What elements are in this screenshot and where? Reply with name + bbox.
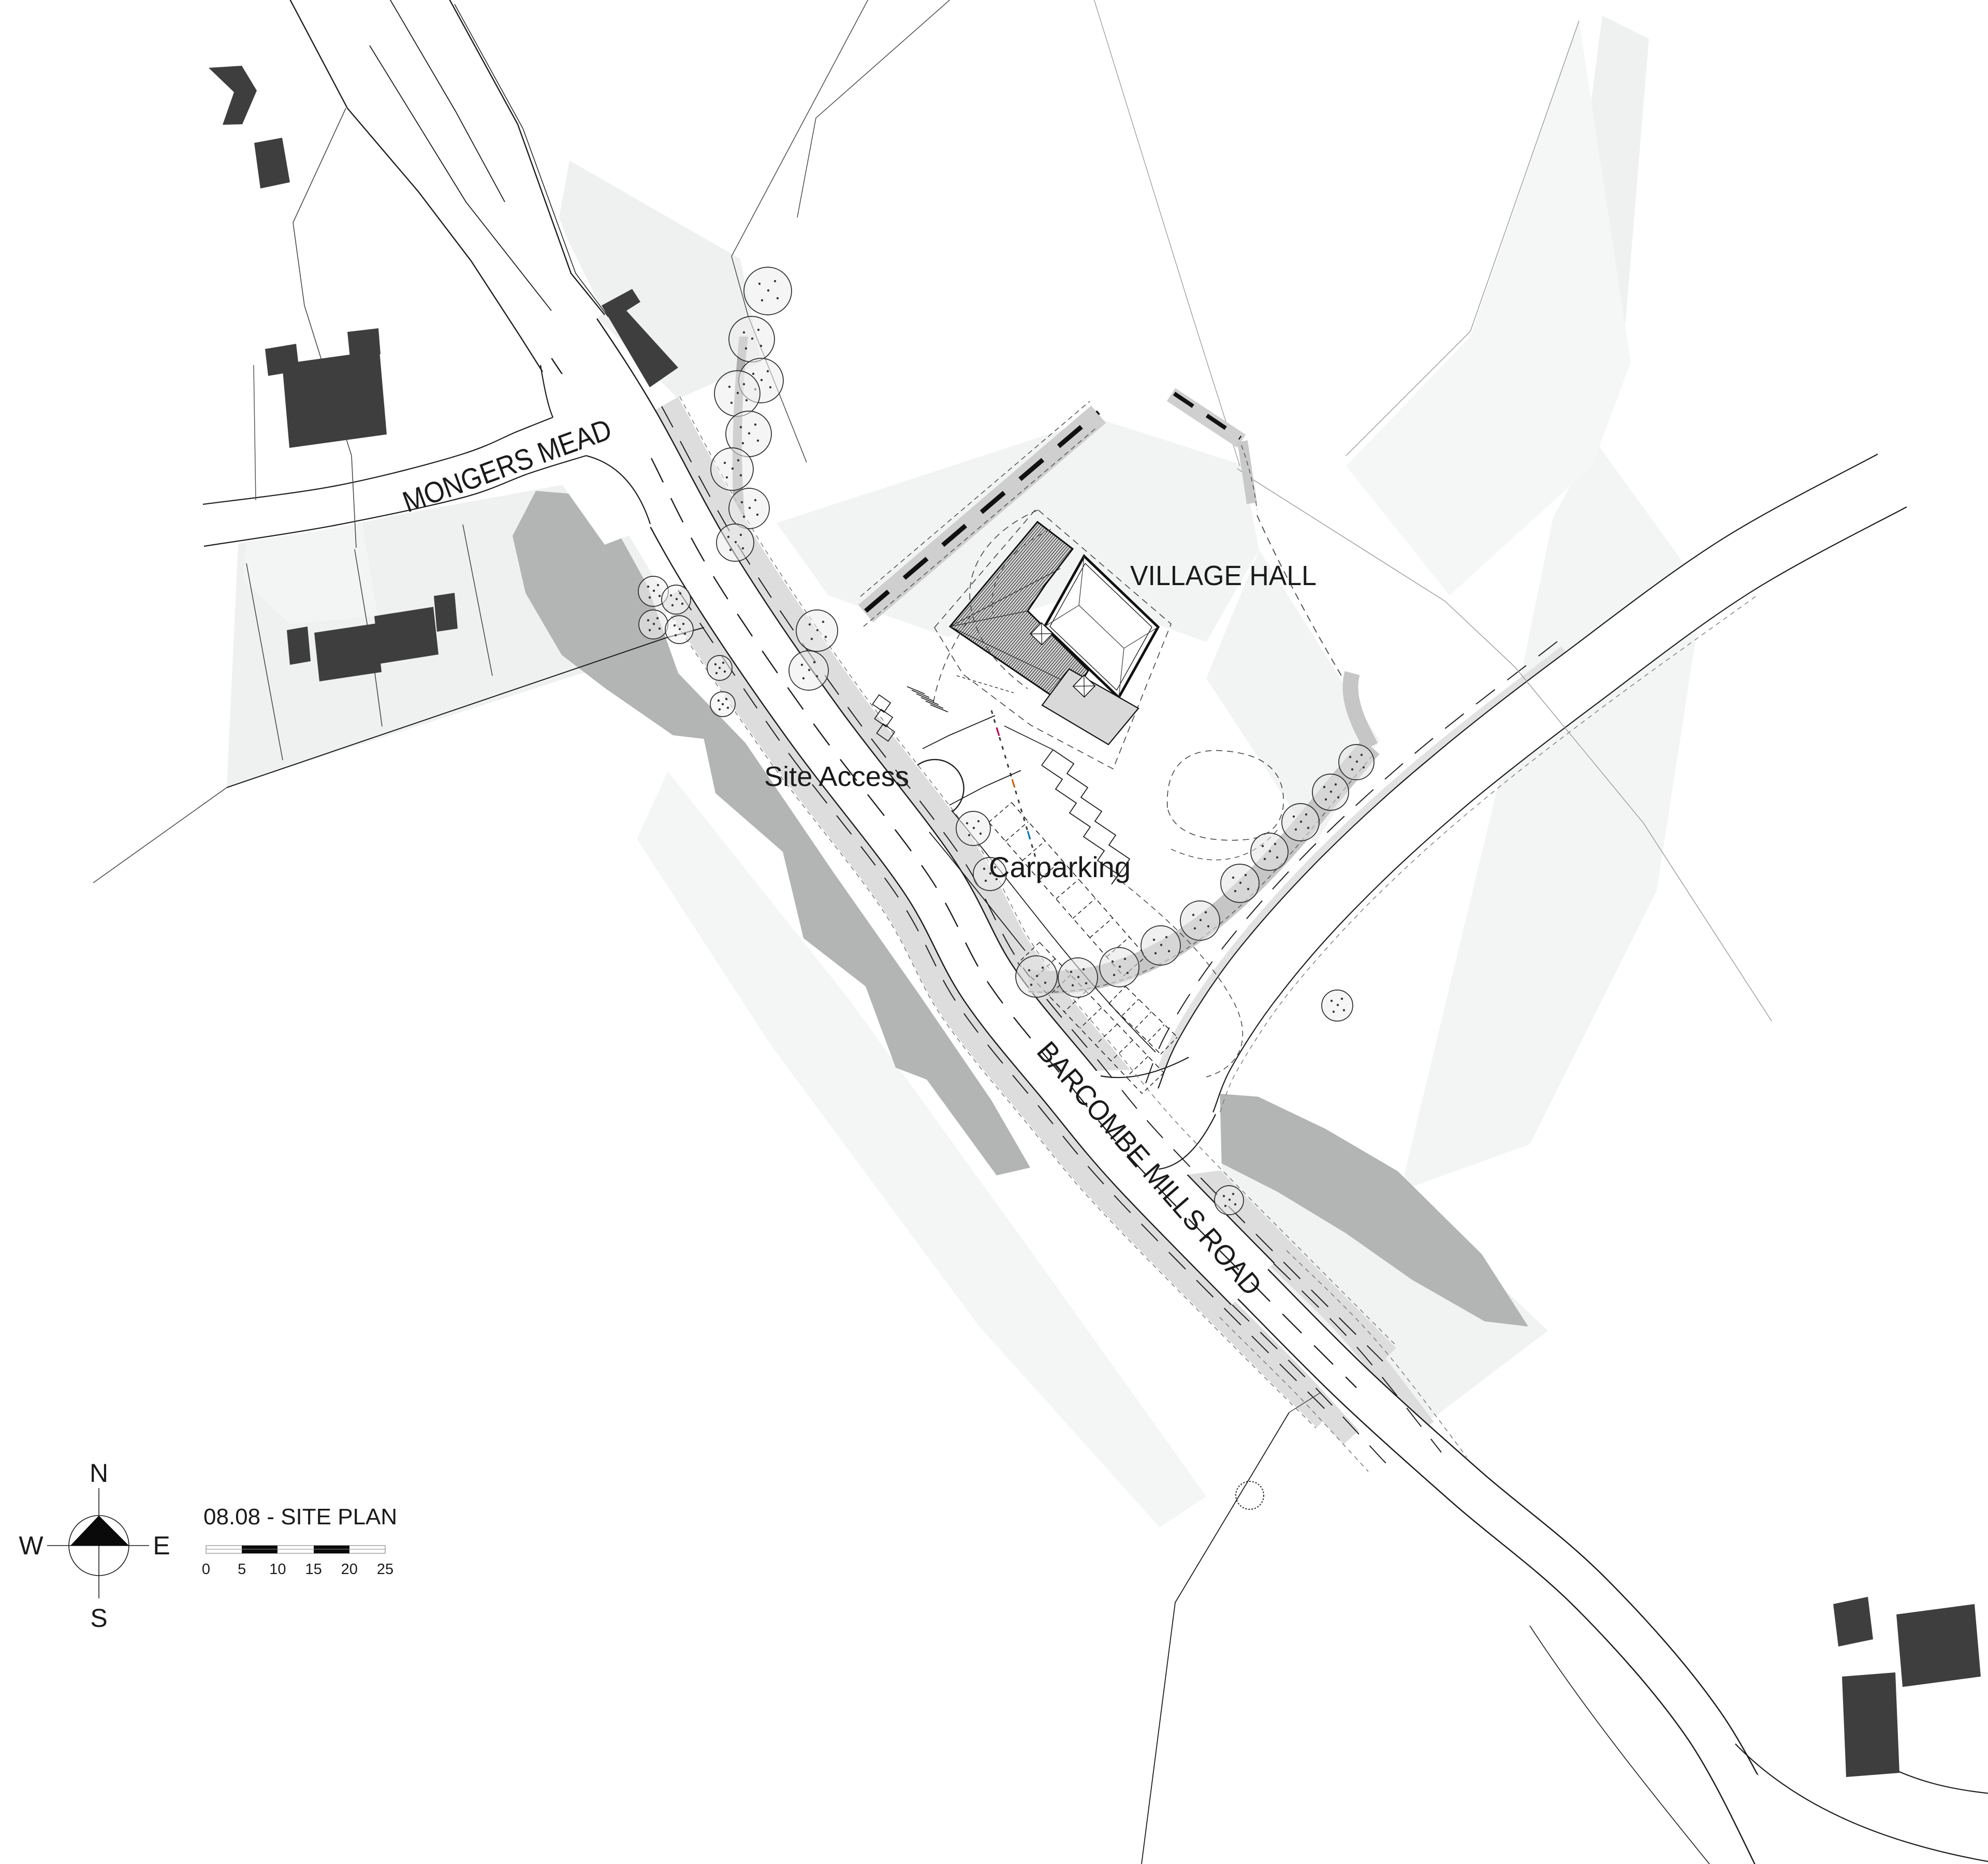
svg-text:0: 0 [202, 1561, 210, 1578]
svg-text:E: E [153, 1531, 170, 1560]
svg-text:15: 15 [305, 1561, 321, 1578]
svg-text:Site Access: Site Access [764, 761, 909, 792]
svg-text:10: 10 [269, 1561, 286, 1578]
svg-text:Carparking: Carparking [989, 851, 1131, 883]
svg-text:5: 5 [238, 1561, 246, 1578]
svg-text:VILLAGE HALL: VILLAGE HALL [1130, 560, 1317, 591]
svg-text:20: 20 [341, 1561, 358, 1578]
svg-text:N: N [90, 1459, 108, 1488]
svg-text:08.08 - SITE PLAN: 08.08 - SITE PLAN [203, 1504, 397, 1530]
svg-text:W: W [19, 1531, 43, 1560]
svg-text:S: S [90, 1604, 107, 1633]
svg-text:25: 25 [377, 1561, 393, 1578]
